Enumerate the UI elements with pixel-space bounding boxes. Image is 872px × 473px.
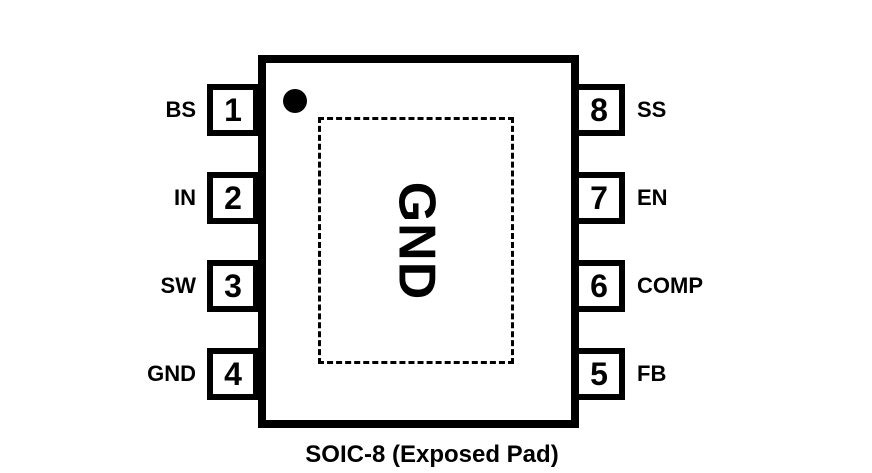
pin-number-6: 6 <box>590 270 608 302</box>
pin-label-sw: SW <box>60 260 196 312</box>
pin-label-en: EN <box>637 172 797 224</box>
package-caption: SOIC-8 (Exposed Pad) <box>246 441 618 469</box>
pin-box-2: 2 <box>207 172 259 224</box>
pin-number-8: 8 <box>590 94 608 126</box>
pin-number-2: 2 <box>224 182 242 214</box>
pin-box-4: 4 <box>207 348 259 400</box>
pin-box-8: 8 <box>573 84 625 136</box>
pin-box-7: 7 <box>573 172 625 224</box>
pin-label-ss: SS <box>637 84 797 136</box>
pin-label-bs: BS <box>60 84 196 136</box>
pin-number-4: 4 <box>224 358 242 390</box>
pin-number-5: 5 <box>590 358 608 390</box>
exposed-pad-label: GND <box>386 181 446 300</box>
pin-box-5: 5 <box>573 348 625 400</box>
pin-box-3: 3 <box>207 260 259 312</box>
pin-label-fb: FB <box>637 348 797 400</box>
pin-label-in: IN <box>60 172 196 224</box>
soic8-pinout-diagram: BS IN SW GND 1 2 3 4 8 7 6 5 SS EN COMP … <box>0 0 872 473</box>
pin-box-6: 6 <box>573 260 625 312</box>
pin-number-3: 3 <box>224 270 242 302</box>
pin-label-comp: COMP <box>637 260 797 312</box>
pin-number-7: 7 <box>590 182 608 214</box>
pin-box-1: 1 <box>207 84 259 136</box>
exposed-pad-outline: GND <box>318 117 514 364</box>
pin-label-gnd: GND <box>60 348 196 400</box>
pin1-indicator-dot <box>283 89 307 113</box>
pin-number-1: 1 <box>224 94 242 126</box>
